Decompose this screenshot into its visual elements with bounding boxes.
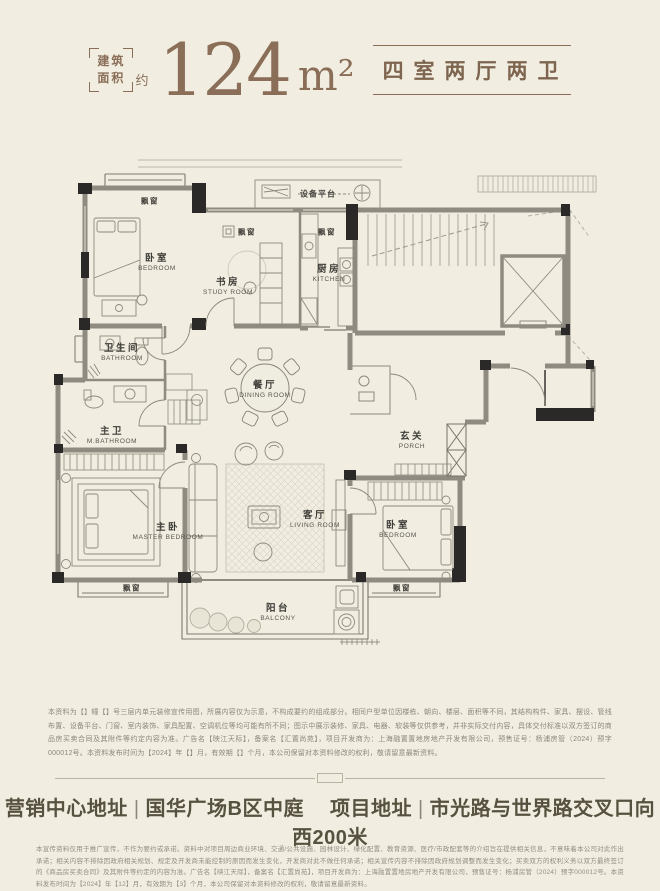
bay-window-label: 飘窗: [393, 583, 411, 594]
bay-window-label: 飘窗: [141, 196, 159, 207]
area-box-line1: 建筑: [97, 53, 125, 70]
room-en: STUDY ROOM: [203, 289, 253, 296]
area-value: 124: [158, 38, 289, 103]
area-unit: m²: [298, 51, 355, 100]
room-label-kitchen: 厨房 KITCHEN: [313, 261, 346, 283]
room-en: BEDROOM: [379, 532, 417, 539]
room-label-balcony: 阳台 BALCONY: [260, 600, 295, 622]
corner-mark: [89, 48, 99, 58]
plan-disclaimer: 本资料为【】幢【】号三层内单元装修宣传用图，所展内容仅为示意，不构成要约的组成部…: [48, 706, 612, 761]
poster-page: 建筑 面积 约 124 m² 四室两厅两卫: [0, 0, 660, 891]
header: 建筑 面积 约 124 m² 四室两厅两卫: [0, 38, 660, 103]
room-zh: 主卫: [87, 423, 137, 437]
room-zh: 主卧: [133, 519, 204, 533]
room-label-study: 书房 STUDY ROOM: [203, 274, 253, 296]
room-en: BEDROOM: [138, 265, 176, 272]
address-line: 营销中心地址|国华广场B区中庭项目地址|市光路与世界路交叉口向西200米: [0, 792, 660, 850]
bay-window-label: 飘窗: [318, 227, 336, 238]
room-zh: 卧室: [379, 517, 417, 531]
area-box-line2: 面积: [97, 70, 125, 87]
porch-cell: [350, 366, 390, 414]
room-zh: 客厅: [290, 507, 340, 521]
room-en: DINING ROOM: [239, 392, 290, 399]
corner-mark: [123, 82, 133, 92]
project-address-label: 项目地址: [330, 798, 412, 820]
room-en: MASTER BEDROOM: [133, 534, 204, 541]
room-zh: 卫生间: [101, 340, 143, 354]
divider-line: [55, 778, 315, 779]
divider-ornament: [317, 773, 343, 783]
room-label-bedroom-bottom: 卧室 BEDROOM: [379, 517, 417, 539]
bay-window-label: 飘窗: [238, 227, 256, 238]
room-en: PORCH: [399, 443, 425, 450]
bay-window-label: 飘窗: [123, 583, 141, 594]
room-zh: 厨房: [313, 261, 346, 275]
separator: |: [128, 798, 146, 820]
room-label-bedroom-top: 卧室 BEDROOM: [138, 250, 176, 272]
corner-mark: [89, 82, 99, 92]
footer-divider: [55, 773, 605, 783]
label-equipment-platform: 设备平台: [300, 189, 336, 200]
duct-shaft: [447, 424, 466, 476]
marketing-center-label: 营销中心地址: [5, 798, 128, 820]
elevator: [502, 256, 564, 328]
footer-fine-print: 本宣传资料仅用于推广宣传，不作为要约或承诺。资料中对项目周边商业环境、交通/公共…: [36, 844, 624, 891]
room-en: KITCHEN: [313, 276, 346, 283]
divider-line: [345, 778, 605, 779]
layout-type: 四室两厅两卫: [373, 45, 571, 95]
room-zh: 餐厅: [239, 377, 290, 391]
room-zh: 玄关: [399, 428, 425, 442]
room-zh: 卧室: [138, 250, 176, 264]
room-en: BATHROOM: [101, 355, 143, 362]
room-label-bathroom: 卫生间 BATHROOM: [101, 340, 143, 362]
floorplan: 设备平台 飘窗 飘窗 飘窗 飘窗 飘窗 卧室 BEDROOM 书房 STUDY …: [50, 148, 610, 700]
area-label-box: 建筑 面积: [89, 48, 133, 92]
room-label-porch: 玄关 PORCH: [399, 428, 425, 450]
room-en: BALCONY: [260, 615, 295, 622]
room-label-living: 客厅 LIVING ROOM: [290, 507, 340, 529]
room-label-dining: 餐厅 DINING ROOM: [239, 377, 290, 399]
room-zh: 书房: [203, 274, 253, 288]
room-label-master-bathroom: 主卫 M.BATHROOM: [87, 423, 137, 445]
approx-label: 约: [135, 70, 148, 89]
exterior-lines: [138, 160, 596, 360]
marketing-center-value: 国华广场B区中庭: [146, 798, 304, 820]
stairs: [368, 214, 494, 266]
room-en: LIVING ROOM: [290, 522, 340, 529]
corner-mark: [123, 48, 133, 58]
room-zh: 阳台: [260, 600, 295, 614]
separator: |: [412, 798, 430, 820]
room-en: M.BATHROOM: [87, 438, 137, 445]
room-label-master-bedroom: 主卧 MASTER BEDROOM: [133, 519, 204, 541]
